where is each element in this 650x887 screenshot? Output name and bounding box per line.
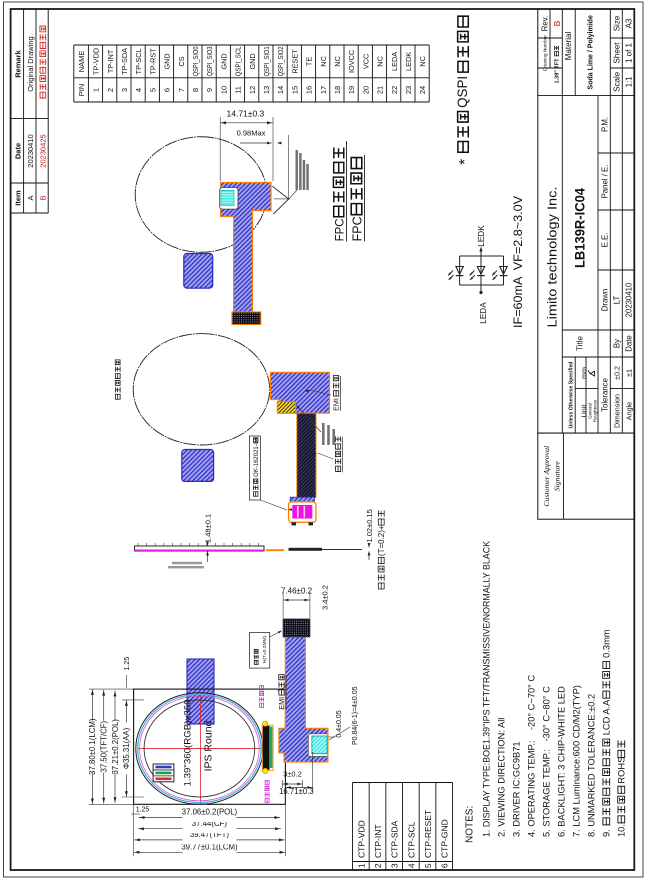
svg-text:Item: Item [14, 190, 23, 206]
svg-text:ROHS: ROHS [617, 757, 627, 784]
svg-text:LEDK: LEDK [404, 52, 413, 71]
svg-text:QSPI_SIO1: QSPI_SIO1 [262, 46, 271, 76]
svg-text:GND: GND [219, 53, 228, 69]
svg-text:P0.84(6-1)=4±0.05: P0.84(6-1)=4±0.05 [352, 686, 359, 745]
svg-text:11: 11 [234, 86, 243, 94]
svg-text:Date: Date [14, 143, 23, 159]
svg-text:16.71±0.3: 16.71±0.3 [279, 787, 314, 796]
svg-text:LEDA: LEDA [390, 52, 399, 71]
svg-text:2: 2 [373, 863, 383, 868]
svg-text:6. BACKLIGHT: 3 CHIP-WHITE LED: 6. BACKLIGHT: 3 CHIP-WHITE LED [557, 686, 567, 837]
svg-text:QSPI_SIO0: QSPI_SIO0 [191, 46, 200, 76]
svg-text:Title: Title [576, 336, 585, 351]
svg-text:Size: Size [613, 15, 622, 31]
svg-text:LEDK: LEDK [477, 225, 486, 247]
svg-text:8: 8 [191, 88, 200, 92]
svg-text:A: A [26, 195, 35, 200]
svg-text:B: B [38, 195, 47, 200]
svg-text:37.80±0.1(LCM): 37.80±0.1(LCM) [88, 718, 97, 775]
svg-text:NC: NC [418, 56, 427, 67]
svg-text:37.06±0.2(POL): 37.06±0.2(POL) [182, 808, 238, 817]
svg-text:±1: ±1 [625, 369, 634, 377]
svg-text:PIN: PIN [77, 84, 86, 97]
svg-text:TE: TE [305, 57, 314, 66]
svg-text:NC: NC [333, 56, 342, 67]
svg-text:16: 16 [305, 86, 314, 94]
svg-text:RESET: RESET [290, 49, 299, 74]
svg-text:1.39" TFT: 1.39" TFT [554, 57, 560, 83]
svg-text:0.98Max: 0.98Max [237, 129, 266, 138]
svg-text:10: 10 [219, 86, 228, 94]
svg-text:6: 6 [163, 88, 172, 92]
svg-text:14.71±0.3: 14.71±0.3 [227, 109, 265, 119]
svg-text:TP-VDD: TP-VDD [92, 48, 101, 75]
svg-text:mm: mm [579, 367, 588, 379]
svg-text:5: 5 [423, 863, 433, 868]
svg-text:Customer Approval: Customer Approval [542, 446, 551, 507]
svg-text:QSPI_SCL: QSPI_SCL [234, 46, 243, 76]
svg-text:Tolerance: Tolerance [601, 378, 610, 412]
svg-text:TP-SCL: TP-SCL [134, 48, 143, 74]
svg-text:8. UNMARKED TOLERANCE:±0.2: 8. UNMARKED TOLERANCE:±0.2 [587, 694, 597, 837]
svg-text:1: 1 [92, 88, 101, 92]
svg-text:19: 19 [347, 86, 356, 94]
svg-text:Roughness: Roughness [593, 399, 598, 422]
svg-text:5. STORAGE TEMP.: -30° C~80°: 5. STORAGE TEMP.: -30° C~80° C [542, 686, 552, 837]
svg-text:7: 7 [177, 88, 186, 92]
svg-text:*: * [457, 159, 474, 165]
svg-text:B: B [552, 20, 562, 26]
svg-text:18: 18 [333, 86, 342, 94]
svg-text:10.: 10. [617, 824, 627, 837]
svg-text:LCD A.A: LCD A.A [602, 699, 612, 735]
svg-text:FPC: FPC [351, 216, 365, 241]
svg-text:A3: A3 [625, 18, 634, 28]
svg-text:22: 22 [390, 86, 399, 94]
svg-text:Soda Lime / Polyimide: Soda Lime / Polyimide [588, 15, 595, 89]
svg-text:1:1: 1:1 [625, 76, 634, 88]
svg-text:IF=60mA VF=2.8~3.0V: IF=60mA VF=2.8~3.0V [511, 196, 525, 328]
svg-text:CTP-SDA: CTP-SDA [390, 820, 400, 858]
svg-text:IOVCC: IOVCC [347, 50, 356, 73]
svg-text:LT: LT [613, 296, 622, 305]
svg-text:QSPI: QSPI [454, 76, 470, 108]
svg-text:Dimension: Dimension [613, 394, 622, 428]
svg-text:E.E.: E.E. [601, 233, 610, 248]
svg-text:1.25: 1.25 [124, 657, 131, 671]
svg-text:7.46±0.2: 7.46±0.2 [281, 587, 313, 596]
svg-text:37.21±0.2(POL): 37.21±0.2(POL) [111, 719, 120, 775]
svg-text:CS: CS [177, 56, 186, 66]
svg-text:By: By [613, 339, 622, 348]
svg-text:1.25: 1.25 [136, 807, 150, 814]
svg-text:TP-RST: TP-RST [148, 48, 157, 75]
svg-text:Scale: Scale [613, 71, 622, 92]
svg-text:12: 12 [248, 86, 257, 94]
svg-text:Sheet: Sheet [613, 42, 622, 64]
svg-text:1. DISPLAY TYPE:BOE1.39"IPS TF: 1. DISPLAY TYPE:BOE1.39"IPS TFT/TRANSMIS… [482, 540, 492, 837]
svg-text:21: 21 [376, 86, 385, 94]
svg-text:15: 15 [290, 86, 299, 94]
svg-text:1.02±0.15: 1.02±0.15 [365, 509, 374, 542]
svg-text:TP-SDA: TP-SDA [120, 48, 129, 75]
svg-text:H(T=0.2MM): H(T=0.2MM) [262, 636, 268, 663]
svg-text:9.: 9. [602, 827, 612, 837]
svg-text:NC: NC [319, 56, 328, 67]
svg-text:Panel / E.: Panel / E. [601, 165, 610, 199]
svg-text:7. LCM Luminance:600 CD/M2(TYP: 7. LCM Luminance:600 CD/M2(TYP) [572, 685, 582, 837]
svg-text:20230410: 20230410 [26, 134, 35, 167]
svg-text:Angle: Angle [625, 402, 634, 420]
svg-text:OK-162021-04: OK-162021-04 [254, 437, 260, 477]
svg-text:1.39"360(RGB)x360: 1.39"360(RGB)x360 [183, 699, 193, 786]
svg-text:±0.2: ±0.2 [613, 366, 622, 380]
svg-text:FPC: FPC [335, 218, 347, 241]
svg-text:CTP-GND: CTP-GND [440, 819, 450, 858]
svg-text:2: 2 [106, 88, 115, 92]
svg-text:20: 20 [361, 86, 370, 94]
svg-text:TP-INT: TP-INT [106, 49, 115, 73]
svg-text:1: 1 [356, 863, 366, 868]
svg-text:VCC: VCC [361, 54, 370, 69]
svg-text:5: 5 [148, 88, 157, 92]
svg-text:3: 3 [120, 88, 129, 92]
svg-text:CTP-VDD: CTP-VDD [356, 820, 366, 858]
svg-text:Rev.: Rev. [541, 16, 550, 31]
svg-text:9: 9 [205, 88, 214, 92]
svg-text:3. DRIVER IC:GC9B71: 3. DRIVER IC:GC9B71 [512, 741, 522, 837]
svg-text:0.3mm: 0.3mm [602, 629, 612, 658]
svg-text:3.4±0.2: 3.4±0.2 [321, 585, 330, 610]
svg-text:EMI: EMI [332, 398, 341, 411]
svg-text:1.48±0.1: 1.48±0.1 [204, 514, 213, 543]
svg-text:NAME: NAME [77, 51, 86, 73]
svg-text:GND: GND [248, 53, 257, 69]
svg-text:3±0.2: 3±0.2 [283, 770, 302, 779]
svg-text:23: 23 [404, 86, 413, 94]
svg-text:IPS Round: IPS Round [203, 720, 215, 771]
svg-text:4. OPERATING TEMP.: -20° C~: 4. OPERATING TEMP.: -20° C~70° C [527, 675, 537, 837]
svg-text:CTP-RESET: CTP-RESET [423, 810, 433, 858]
svg-text:6: 6 [440, 863, 450, 868]
svg-text:20230425: 20230425 [38, 134, 47, 167]
svg-text:Φ35.31(AA): Φ35.31(AA) [122, 727, 131, 769]
svg-text:Material: Material [564, 32, 573, 61]
svg-text:Signature: Signature [553, 461, 562, 492]
svg-text:Drawing Number: Drawing Number [543, 35, 549, 71]
svg-text:1 of 1: 1 of 1 [625, 42, 634, 63]
svg-text:GND: GND [163, 53, 172, 69]
svg-text:Original Drawing: Original Drawing [26, 36, 35, 91]
svg-text:3: 3 [390, 863, 400, 868]
svg-text:CTP-INT: CTP-INT [373, 824, 383, 858]
svg-text:Drawn: Drawn [601, 289, 610, 312]
svg-text:4: 4 [134, 88, 143, 92]
svg-text:Date: Date [625, 335, 634, 351]
svg-text:Limito technology Inc.: Limito technology Inc. [545, 187, 560, 328]
svg-text:CTP-SCL: CTP-SCL [406, 821, 416, 858]
svg-text:NC: NC [376, 56, 385, 67]
svg-text:Unless Otherwise Specified: Unless Otherwise Specified [568, 362, 574, 429]
svg-text:Remark: Remark [14, 49, 23, 77]
svg-text:4: 4 [406, 863, 416, 868]
svg-text:(T=0.2)+: (T=0.2)+ [377, 525, 386, 556]
svg-text:QSPI_SIO2: QSPI_SIO2 [276, 46, 285, 76]
svg-text:17: 17 [319, 86, 328, 94]
svg-text:LEDA: LEDA [479, 302, 488, 324]
svg-text:EMI: EMI [277, 697, 286, 710]
svg-text:14: 14 [276, 86, 285, 94]
svg-text:13: 13 [262, 86, 271, 94]
svg-text:2. VIEWING DIRECTION: All: 2. VIEWING DIRECTION: All [497, 718, 507, 837]
svg-text:NOTES:: NOTES: [465, 806, 476, 843]
svg-text:QSPI_SIO3: QSPI_SIO3 [205, 46, 214, 76]
svg-text:P.M.: P.M. [601, 117, 610, 132]
svg-text:LB139R-IC04: LB139R-IC04 [572, 188, 588, 268]
svg-text:37.50(TFT/CF): 37.50(TFT/CF) [100, 721, 109, 773]
svg-text:24: 24 [418, 86, 427, 94]
svg-text:20230410: 20230410 [625, 282, 634, 317]
